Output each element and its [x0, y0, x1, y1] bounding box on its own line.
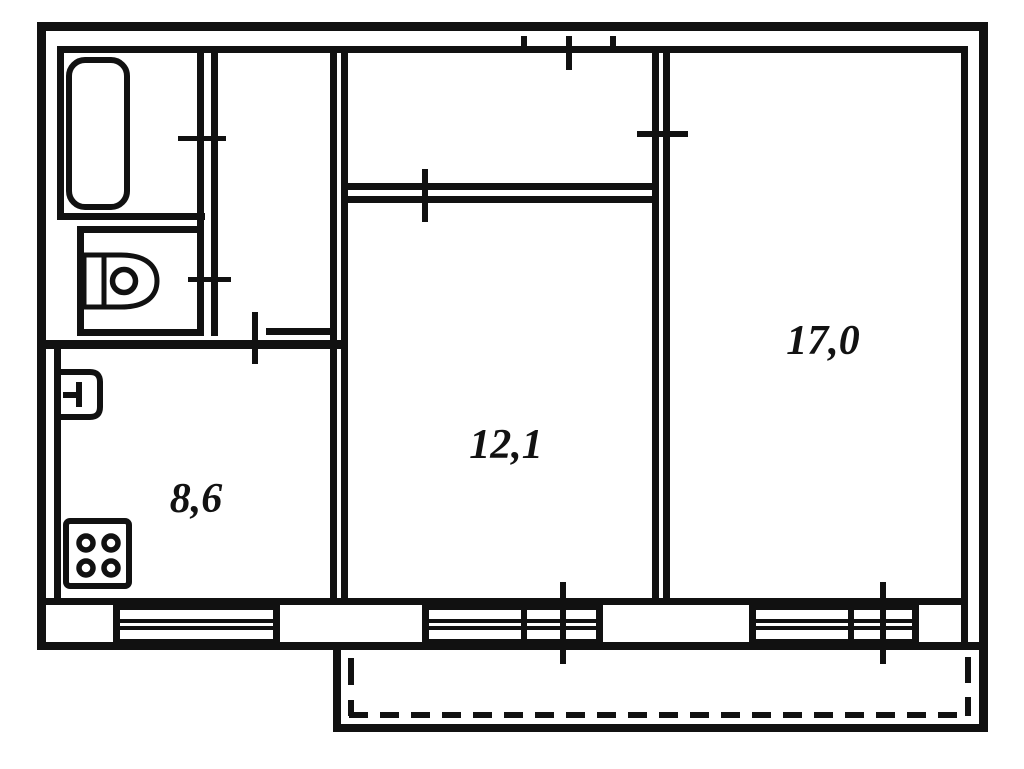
svg-text:8,6: 8,6: [170, 476, 223, 522]
svg-text:17,0: 17,0: [786, 318, 860, 364]
svg-text:12,1: 12,1: [469, 422, 543, 468]
